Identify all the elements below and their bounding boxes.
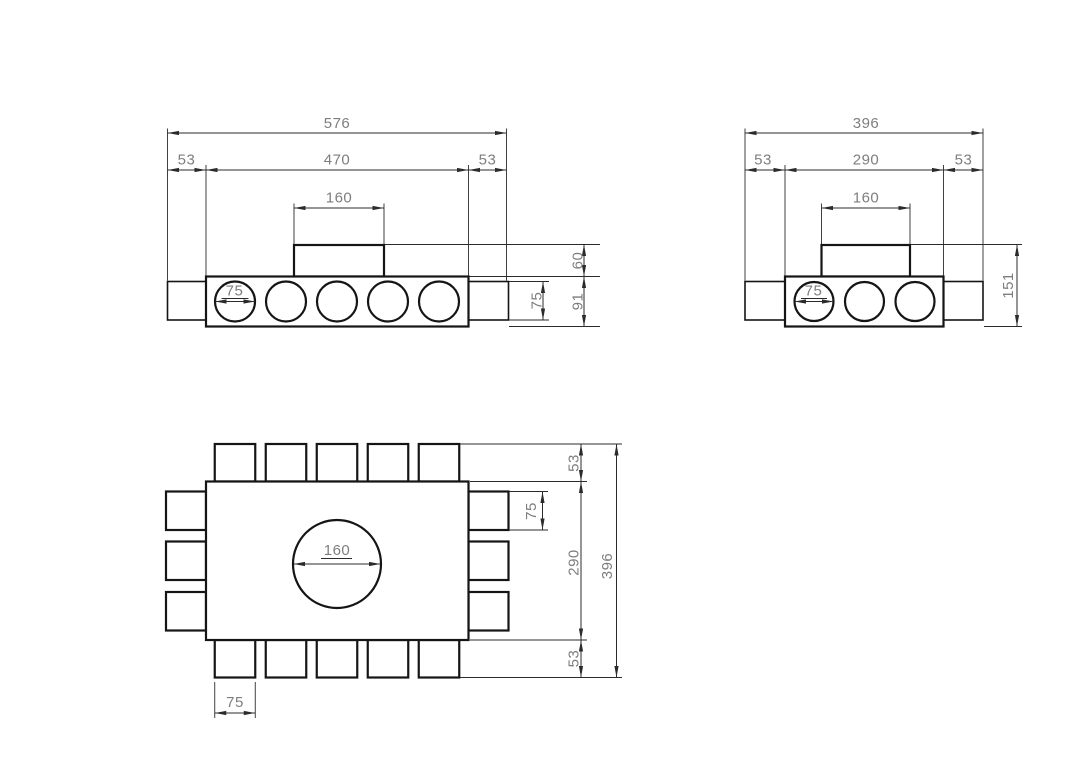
port-circle — [845, 282, 884, 321]
dim-label-collar-width: 160 — [853, 190, 880, 207]
left-spigot — [168, 282, 207, 321]
right-stub — [469, 592, 509, 631]
dim-label-bottom-stub-depth: 53 — [566, 650, 583, 668]
bottom-stub — [266, 640, 307, 678]
bottom-stub — [317, 640, 358, 678]
port-circle — [368, 282, 408, 322]
dim-label-right-stub-width: 75 — [523, 502, 540, 520]
top-collar — [822, 245, 911, 277]
dim-label-inner-width: 470 — [324, 152, 351, 169]
top-stub — [266, 444, 307, 482]
dim-label-inner-depth: 290 — [566, 549, 583, 576]
dim-label-centre-hole: 160 — [324, 542, 351, 559]
left-stub — [166, 592, 206, 631]
right-spigot — [944, 282, 984, 321]
left-stub — [166, 492, 206, 531]
dim-label-bottom-stub-width: 75 — [226, 694, 244, 711]
dim-label-top-stub-depth: 53 — [566, 454, 583, 472]
port-circle — [266, 282, 306, 322]
plan-view: 160 53 75 290 396 53 75 — [166, 444, 622, 718]
top-collar — [294, 245, 384, 277]
front-view-wide: 576 53 470 53 160 75 75 60 91 — [168, 115, 601, 327]
right-stub — [469, 492, 509, 531]
port-circle — [896, 282, 935, 321]
right-spigot — [469, 282, 509, 321]
dim-label-total-depth: 396 — [599, 553, 616, 580]
dim-label-port-diameter: 75 — [226, 283, 244, 300]
dim-label-left-margin: 53 — [754, 152, 772, 169]
dim-label-collar-height: 60 — [570, 252, 587, 270]
right-stub — [469, 542, 509, 581]
dim-label-port-diameter: 75 — [805, 283, 823, 300]
front-view-narrow: 396 53 290 53 160 75 151 — [745, 115, 1022, 327]
dim-label-right-margin: 53 — [955, 152, 973, 169]
dim-label-right-margin: 53 — [479, 152, 497, 169]
top-stub — [419, 444, 460, 482]
dim-label-collar-width: 160 — [326, 190, 353, 207]
bottom-stub — [368, 640, 409, 678]
dim-label-body-height: 91 — [570, 293, 587, 311]
left-spigot — [745, 282, 785, 321]
bottom-stub — [419, 640, 460, 678]
top-stub — [215, 444, 256, 482]
drawing-canvas: 576 53 470 53 160 75 75 60 91 — [0, 0, 1083, 770]
dim-label-stub-height: 75 — [529, 292, 546, 310]
top-stub — [368, 444, 409, 482]
top-stub — [317, 444, 358, 482]
dim-label-left-margin: 53 — [178, 152, 196, 169]
dim-label-inner-width: 290 — [853, 152, 880, 169]
dim-label-total-height: 151 — [1000, 272, 1017, 299]
port-circle — [317, 282, 357, 322]
port-circle — [419, 282, 459, 322]
bottom-stub — [215, 640, 256, 678]
dim-label-total-width: 396 — [853, 115, 880, 132]
drawing-sheet: 576 53 470 53 160 75 75 60 91 — [0, 0, 1083, 770]
dim-label-total-width: 576 — [324, 115, 351, 132]
left-stub — [166, 542, 206, 581]
